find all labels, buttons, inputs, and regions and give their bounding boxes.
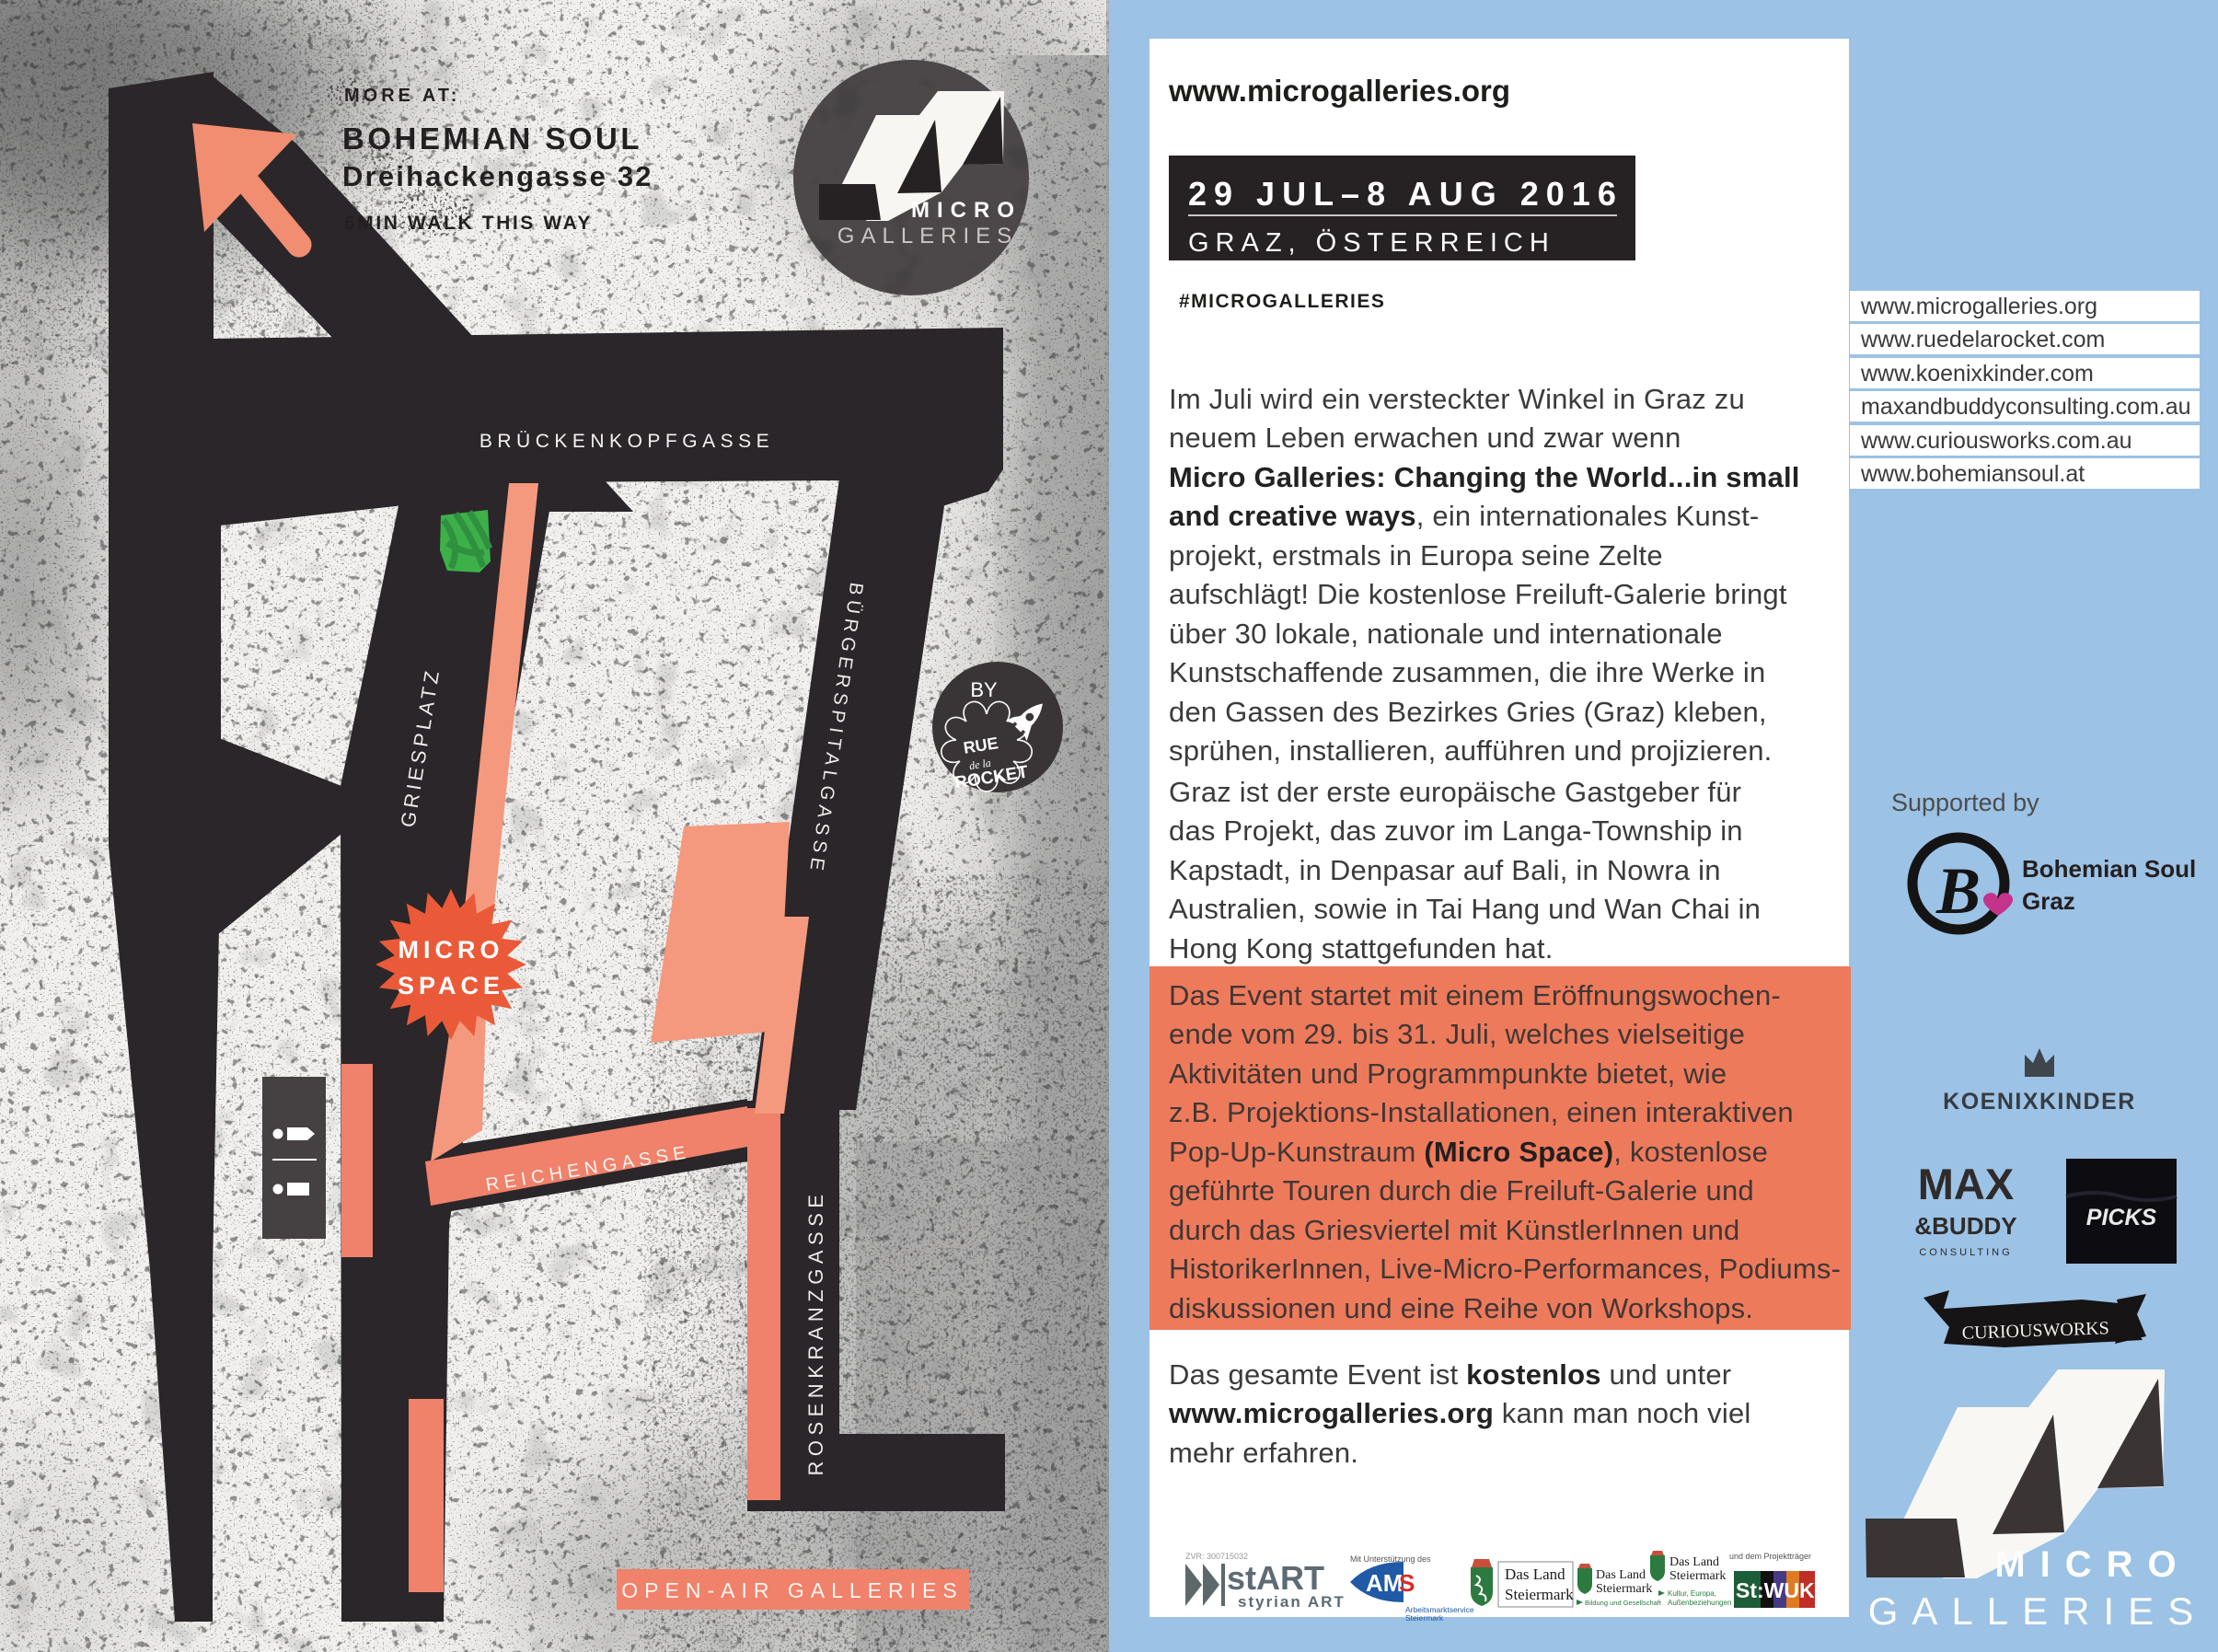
svg-text:Das Land: Das Land — [1596, 1568, 1646, 1582]
svg-text:styrian ART: styrian ART — [1238, 1593, 1346, 1611]
svg-text:Australien, sowie in Tai Hang: Australien, sowie in Tai Hang und Wan Ch… — [1169, 893, 1761, 925]
svg-text:Graz ist der erste europäische: Graz ist der erste europäische Gastgeber… — [1169, 776, 1741, 808]
svg-text:ROSENKRANZGASSE: ROSENKRANZGASSE — [804, 1189, 827, 1475]
svg-text:www.microgalleries.org: www.microgalleries.org — [1168, 74, 1510, 108]
svg-text:aufschlägt! Die kostenlose Fre: aufschlägt! Die kostenlose Freiluft-Gale… — [1169, 578, 1787, 610]
svg-text:projekt, erstmals in Europa se: projekt, erstmals in Europa seine Zelte — [1169, 539, 1663, 572]
svg-text:MAX: MAX — [1918, 1160, 2014, 1208]
svg-text:stART: stART — [1227, 1559, 1324, 1597]
svg-text:SPACE: SPACE — [398, 972, 504, 999]
svg-text:Das gesamte Event ist kostenlo: Das gesamte Event ist kostenlos und unte… — [1169, 1358, 1731, 1391]
svg-text:Kapstadt, in Denpasar auf Bali: Kapstadt, in Denpasar auf Bali, in Nowra… — [1169, 854, 1721, 886]
svg-text:29 JUL–8 AUG 2016: 29 JUL–8 AUG 2016 — [1188, 175, 1623, 213]
svg-text:diskussionen und eine Reihe vo: diskussionen und eine Reihe von Workshop… — [1169, 1292, 1753, 1324]
svg-text:Kunstschaffende zusammen, die: Kunstschaffende zusammen, die ihre Werke… — [1169, 656, 1765, 688]
svg-text:Aktivitäten und Programmpunkte: Aktivitäten und Programmpunkte bietet, w… — [1169, 1057, 1727, 1090]
svg-text:Dreihackengasse 32: Dreihackengasse 32 — [342, 160, 653, 192]
svg-text:sprühen, installieren, aufführ: sprühen, installieren, aufführen und pro… — [1169, 734, 1772, 767]
svg-text:Pop-Up-Kunstraum (Micro Space): Pop-Up-Kunstraum (Micro Space), kostenlo… — [1169, 1136, 1768, 1168]
svg-text:und dem Projektträger: und dem Projektträger — [1729, 1552, 1811, 1561]
svg-text:CONSULTING: CONSULTING — [1919, 1247, 2012, 1258]
svg-text:Steiermark: Steiermark — [1505, 1586, 1574, 1603]
svg-text:Bildung und Gesellschaft: Bildung und Gesellschaft — [1585, 1599, 1662, 1607]
svg-text:AM: AM — [1366, 1569, 1403, 1597]
svg-text:Steiermark: Steiermark — [1596, 1582, 1652, 1596]
svg-text:Das Land: Das Land — [1669, 1555, 1719, 1569]
svg-text:Supported by: Supported by — [1891, 789, 2039, 816]
svg-text:über 30 lokale, nationale und: über 30 lokale, nationale und internatio… — [1169, 618, 1723, 650]
svg-text:das Projekt, das zuvor im Lang: das Projekt, das zuvor im Langa-Township… — [1169, 814, 1743, 847]
svg-text:GALLERIES: GALLERIES — [1868, 1589, 2207, 1633]
svg-text:MICRO: MICRO — [1994, 1544, 2190, 1585]
svg-text:maxandbuddyconsulting.com.au: maxandbuddyconsulting.com.au — [1861, 394, 2191, 420]
svg-text:MICRO: MICRO — [399, 936, 504, 964]
svg-text:Hong Kong stattgefunden hat.: Hong Kong stattgefunden hat. — [1169, 932, 1554, 965]
svg-text:Steiermark: Steiermark — [1669, 1569, 1726, 1583]
svg-text:HistorikerInnen, Live-Micro-Pe: HistorikerInnen, Live-Micro-Performances… — [1169, 1253, 1841, 1285]
svg-text:B: B — [1935, 854, 1981, 928]
svg-text:BY: BY — [970, 678, 998, 701]
svg-text:www.koenixkinder.com: www.koenixkinder.com — [1860, 361, 2094, 387]
svg-text:Das Land: Das Land — [1505, 1565, 1565, 1583]
svg-text:MORE AT:: MORE AT: — [344, 86, 460, 106]
svg-text:www.microgalleries.org: www.microgalleries.org — [1860, 294, 2097, 319]
svg-text:S: S — [1399, 1569, 1415, 1597]
svg-text:durch das Griesviertel mit Kün: durch das Griesviertel mit KünstlerInnen… — [1169, 1214, 1740, 1246]
svg-text:geführte Touren durch die Frei: geführte Touren durch die Freiluft-Galer… — [1169, 1174, 1754, 1207]
svg-text:&BUDDY: &BUDDY — [1914, 1212, 2016, 1240]
svg-text:den Gassen des Bezirkes Gries: den Gassen des Bezirkes Gries (Graz) kle… — [1169, 696, 1767, 728]
svg-text:www.microgalleries.org kann ma: www.microgalleries.org kann man noch vie… — [1168, 1397, 1750, 1429]
svg-text:Graz: Graz — [2022, 887, 2075, 915]
svg-text:GALLERIES: GALLERIES — [838, 224, 1018, 248]
svg-text:PICKS: PICKS — [2086, 1205, 2157, 1230]
svg-text:Außenbeziehungen: Außenbeziehungen — [1668, 1599, 1731, 1607]
svg-text:Im Juli wird ein versteckter W: Im Juli wird ein versteckter Winkel in G… — [1169, 383, 1745, 415]
svg-text:KOENIXKINDER: KOENIXKINDER — [1943, 1089, 2136, 1115]
svg-text:#MICROGALLERIES: #MICROGALLERIES — [1179, 291, 1385, 312]
svg-text:BOHEMIAN SOUL: BOHEMIAN SOUL — [342, 121, 642, 156]
svg-text:Micro Galleries: Changing the: Micro Galleries: Changing the World...in… — [1169, 461, 1800, 493]
svg-text:www.curiousworks.com.au: www.curiousworks.com.au — [1860, 428, 2132, 454]
svg-text:mehr erfahren.: mehr erfahren. — [1169, 1437, 1358, 1469]
svg-text:MICRO: MICRO — [911, 198, 1022, 223]
svg-text:Mit Unterstützung des: Mit Unterstützung des — [1350, 1554, 1431, 1564]
svg-text:6MIN WALK THIS WAY: 6MIN WALK THIS WAY — [344, 213, 593, 234]
svg-text:Steiermark: Steiermark — [1405, 1613, 1444, 1623]
svg-text:GRAZ, ÖSTERREICH: GRAZ, ÖSTERREICH — [1188, 228, 1555, 258]
svg-text:St:WUK: St:WUK — [1736, 1578, 1815, 1602]
svg-text:z.B. Projektions-Installatione: z.B. Projektions-Installationen, einen i… — [1169, 1096, 1794, 1128]
svg-text:Das Event startet mit einem Er: Das Event startet mit einem Eröffnungswo… — [1169, 979, 1781, 1011]
svg-text:OPEN-AIR GALLERIES: OPEN-AIR GALLERIES — [621, 1578, 963, 1602]
svg-text:www.bohemiansoul.at: www.bohemiansoul.at — [1860, 461, 2085, 487]
svg-text:Bohemian Soul: Bohemian Soul — [2022, 855, 2196, 883]
svg-text:www.ruedelarocket.com: www.ruedelarocket.com — [1860, 327, 2105, 352]
svg-text:ende vom 29. bis 31. Juli, wel: ende vom 29. bis 31. Juli, welches viels… — [1169, 1018, 1745, 1050]
svg-text:Kultur, Europa,: Kultur, Europa, — [1668, 1589, 1716, 1598]
svg-text:neuem Leben erwachen und zwar: neuem Leben erwachen und zwar wenn — [1169, 422, 1681, 454]
svg-text:BRÜCKENKOPFGASSE: BRÜCKENKOPFGASSE — [479, 431, 774, 452]
svg-text:and creative ways, ein interna: and creative ways, ein internationales K… — [1169, 500, 1759, 532]
